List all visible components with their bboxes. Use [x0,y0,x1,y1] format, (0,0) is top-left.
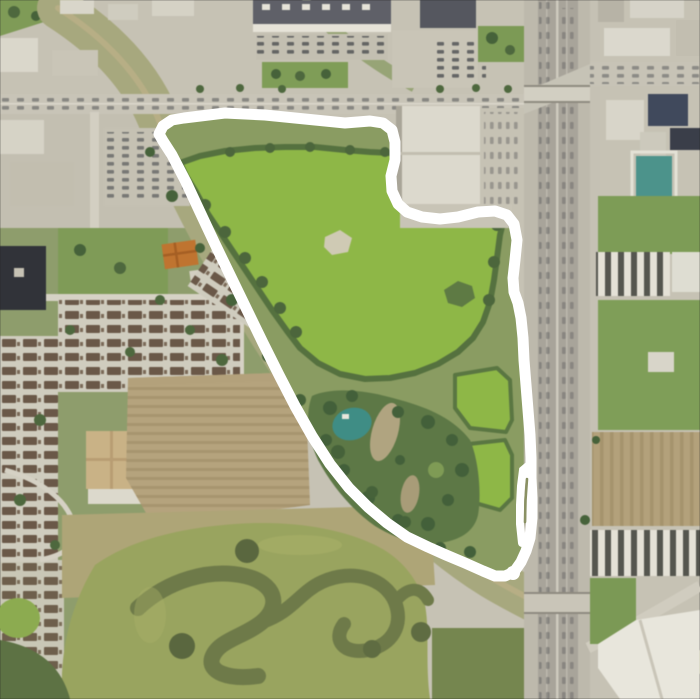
tree-icon [8,6,20,18]
tree-icon [321,69,331,79]
office-facade [253,24,391,32]
park-gap [428,462,444,478]
green-patch [478,26,524,62]
terrain-layer [0,0,700,699]
teal-building [636,156,672,198]
retail-building [10,162,74,206]
wetland-pond [169,633,195,659]
storage-rows [596,252,670,296]
office-dark-roof [253,0,391,24]
parked-cars [256,36,388,58]
building [152,0,194,16]
building-court [14,268,24,277]
tilled-field [126,372,310,520]
dark-roof-building [420,0,476,28]
tree-icon [114,262,126,274]
townhome-row [590,530,700,576]
wetland-pond [235,539,259,563]
tree-icon [295,71,305,81]
building [60,0,94,14]
green-strip [455,368,512,432]
building [630,0,684,18]
warehouse-roofline [396,152,480,155]
retail-building [0,120,44,154]
dark-roof-building [648,94,688,126]
orange-building [161,240,198,269]
building [52,50,98,76]
school-roofline [110,431,113,489]
building [604,28,670,56]
loop-end-blob [506,566,520,580]
tilled-field-east [592,432,700,526]
residential-block [0,336,58,562]
tree-icon [486,32,498,44]
building [598,0,624,22]
tree-icon [271,69,281,79]
bridge-edge [524,612,590,614]
overpass-deck [524,86,590,102]
pavilion-roof [342,414,349,419]
overpass-edge [524,85,590,87]
traffic [590,64,700,84]
satellite-canvas [0,0,700,699]
creek-bridge [524,594,590,612]
tree-icon [505,45,515,55]
dark-building [0,246,46,310]
green-lot [58,228,168,294]
green-field [598,196,700,254]
aerial-map [0,0,700,699]
building [108,4,138,20]
wetland-highlight [134,587,166,643]
parked-cars [430,42,486,80]
wetland-highlight [258,535,342,555]
wetland-pond [363,640,381,658]
wetland-pond [411,622,431,642]
overpass-edge [524,101,590,103]
storage-building [672,252,700,292]
tree-icon [74,244,86,256]
bridge-edge [524,592,590,594]
field-structure [648,352,674,372]
parked-trailers [484,112,520,204]
retail-store [0,38,38,72]
building [606,100,644,140]
scrub-field [432,628,528,699]
building [676,20,700,56]
dark-roof-building [670,128,700,150]
